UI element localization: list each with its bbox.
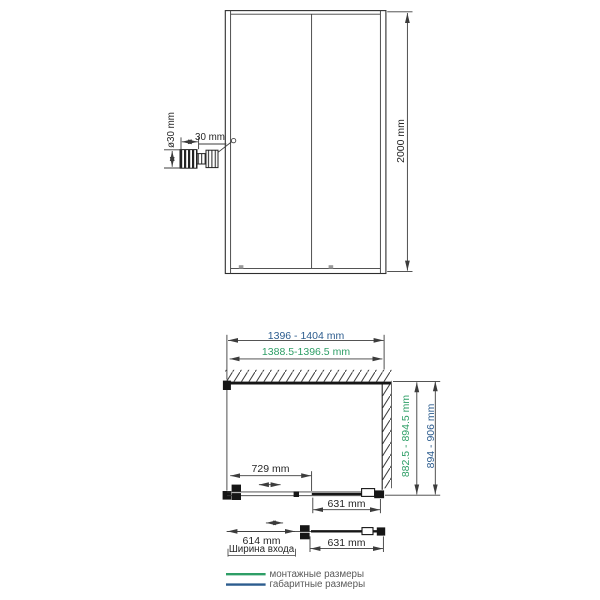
roller-left — [239, 265, 244, 268]
plan-overall-width-label: 1396 - 1404 mm — [226, 330, 386, 342]
right-wall-hatch — [382, 385, 391, 489]
side-panel-wall-profile — [223, 381, 231, 390]
knob-left — [180, 150, 197, 169]
open-profile — [362, 528, 373, 535]
knob-right — [206, 150, 218, 167]
knob-stem — [197, 154, 206, 164]
back-wall-face — [225, 382, 391, 385]
center-guide-plan — [294, 491, 299, 497]
roller-right — [329, 265, 334, 268]
plan-mounting-width-label: 1388.5-1396.5 mm — [226, 346, 386, 358]
handle-diameter-dim-label: ø30 mm — [166, 105, 178, 155]
handle-knob-plan-inner — [232, 493, 241, 500]
legend-overall-label: габаритные размеры — [270, 579, 366, 590]
open-fixed-panel-label: 631 mm — [307, 537, 387, 549]
plan-door-travel-label: 729 mm — [231, 463, 311, 475]
entry-width-caption: Ширина входа — [212, 544, 312, 556]
open-end-profile — [377, 527, 385, 535]
drawing-linework — [0, 0, 600, 600]
open-handle-outer — [300, 525, 310, 532]
shower-door-technical-drawing: 2000 mm ø30 mm 30 mm 1396 - 1404 mm 1388… — [0, 0, 600, 600]
door-outer-frame — [225, 11, 386, 274]
profile-plan — [362, 489, 375, 497]
plan-fixed-panel-label: 631 mm — [307, 498, 387, 510]
legend-mounting-label: монтажные размеры — [270, 569, 365, 580]
front-height-dim-label: 2000 mm — [395, 111, 407, 171]
plan-overall-depth-label: 894 - 906 mm — [425, 391, 437, 481]
front-view — [218, 11, 412, 274]
plan-mounting-depth-label: 882.5 - 894.5 mm — [400, 381, 412, 491]
back-wall-hatch — [225, 370, 391, 382]
handle-knob-plan-outer — [232, 485, 241, 492]
handle-width-dim-label: 30 mm — [185, 132, 235, 144]
legend-lines — [226, 574, 266, 584]
